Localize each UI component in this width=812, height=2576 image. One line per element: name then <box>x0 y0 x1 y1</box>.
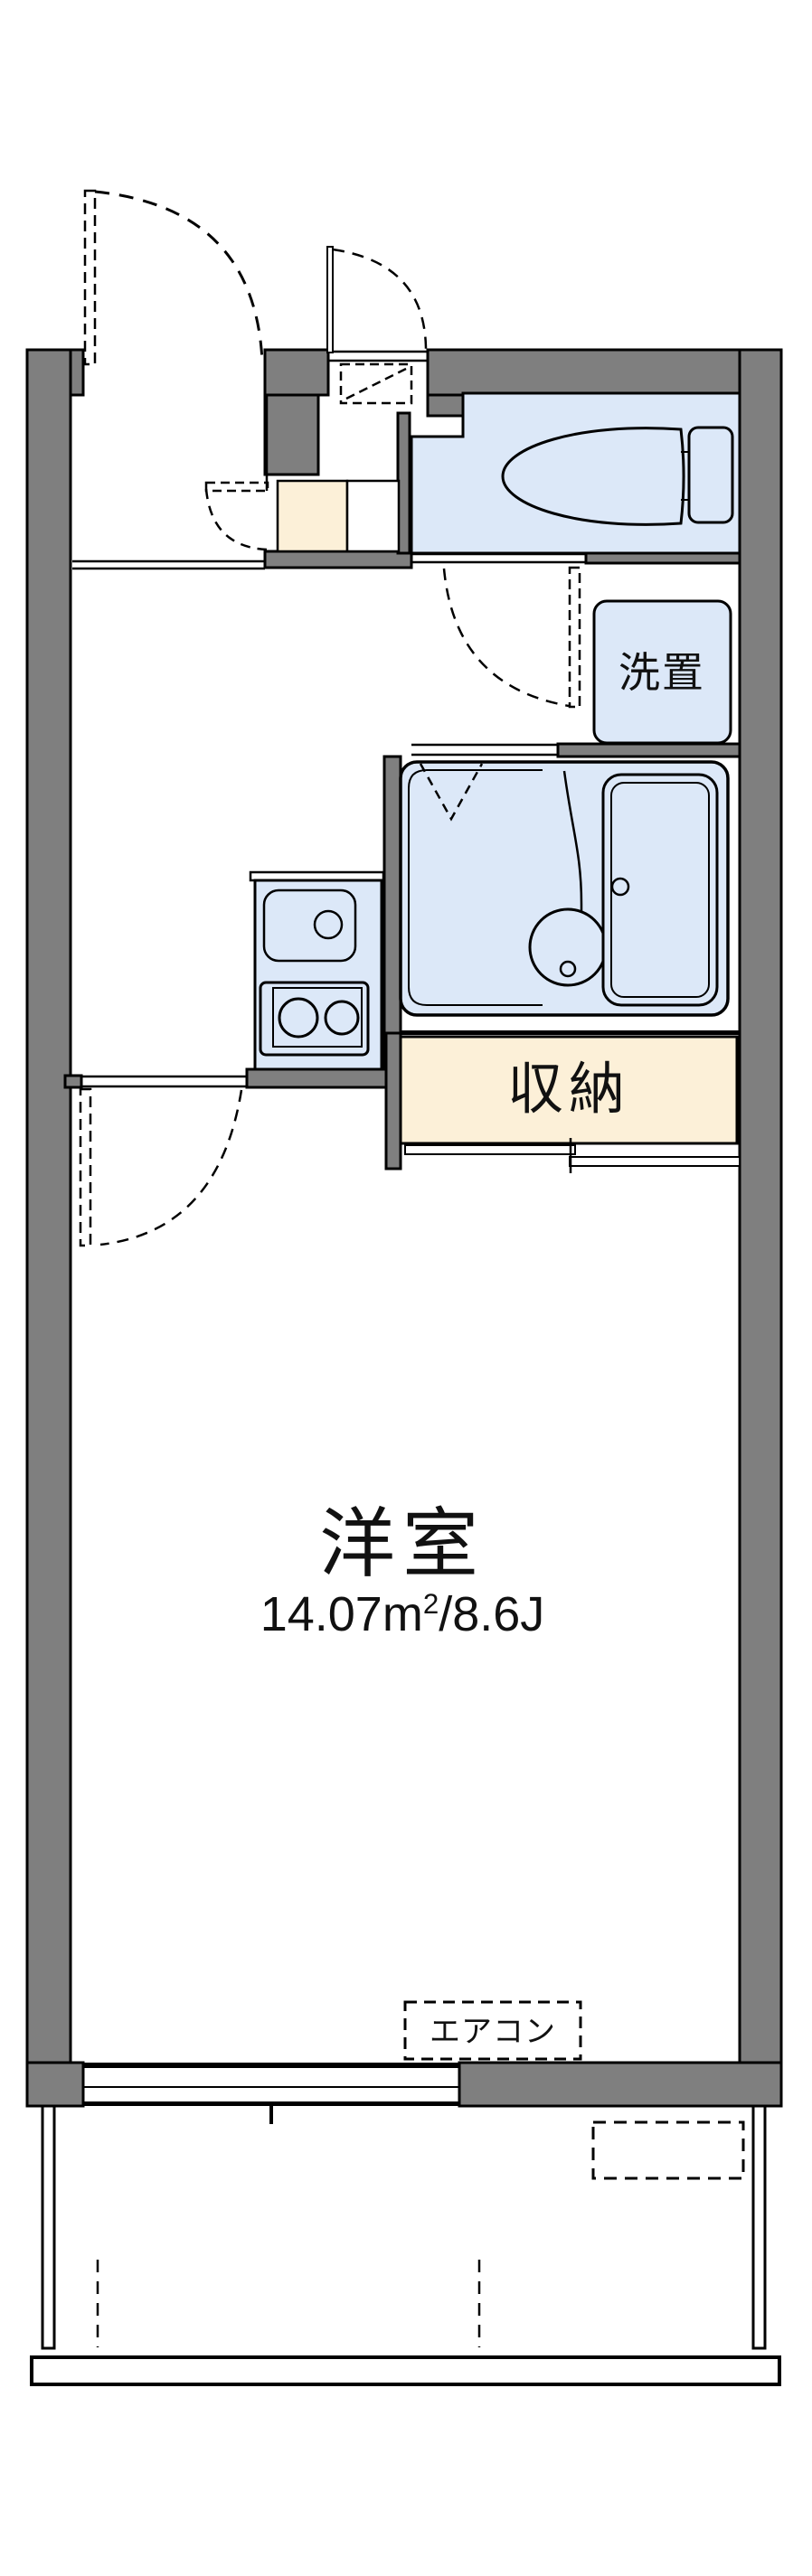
wall-right <box>740 350 781 2106</box>
floorplan-drawing <box>0 0 812 2576</box>
meter-door-leaf <box>327 247 333 353</box>
floorplan-canvas: 洗置 収納 洋室 14.07m2/8.6J エアコン <box>0 0 812 2576</box>
window-center-tick <box>269 2106 273 2124</box>
wall-bath-bottom-line <box>401 1030 740 1035</box>
porch-floor <box>328 362 428 399</box>
wall-under-hall <box>265 551 411 568</box>
room-area-part2: /8.6J <box>439 1587 544 1641</box>
balcony-wall-left <box>42 2106 54 2348</box>
wall-bottom-left <box>27 2063 83 2106</box>
shoe-cabinet <box>278 481 347 551</box>
closet-sliding-door-left <box>405 1145 575 1154</box>
bathtub <box>603 775 717 1005</box>
western-room-label: 洋室 <box>319 1506 486 1582</box>
storage-label: 収納 <box>507 1062 630 1118</box>
room-area-sup: 2 <box>423 1588 439 1620</box>
bath-stool <box>530 909 606 985</box>
aircon-label: エアコン <box>430 2017 556 2047</box>
wall-below-kitchen <box>247 1069 401 1087</box>
room-area-label: 14.07m2/8.6J <box>260 1590 545 1639</box>
wall-roomdoor-stub <box>65 1076 81 1087</box>
balcony-wall-right <box>753 2106 765 2348</box>
wall-bottom-right <box>459 2063 781 2106</box>
room-area-part1: 14.07m <box>260 1587 423 1641</box>
wall-entrance-stub <box>265 395 318 475</box>
window-bottom-edge <box>83 2101 459 2106</box>
balcony-rail <box>32 2357 779 2384</box>
wall-closet-left <box>386 1033 401 1169</box>
closet-sliding-door-right <box>570 1157 740 1166</box>
wall-top-right <box>428 350 781 395</box>
wall-porch-filler <box>428 395 463 416</box>
window-top-edge <box>83 2063 459 2068</box>
wall-toilet-bottom <box>586 553 740 563</box>
wall-washroom-bottom <box>558 744 740 757</box>
washer-place-label: 洗置 <box>618 652 705 693</box>
shoe-cabinet-side <box>347 481 399 551</box>
wall-top-middle <box>265 350 328 395</box>
wall-left <box>27 350 71 2106</box>
